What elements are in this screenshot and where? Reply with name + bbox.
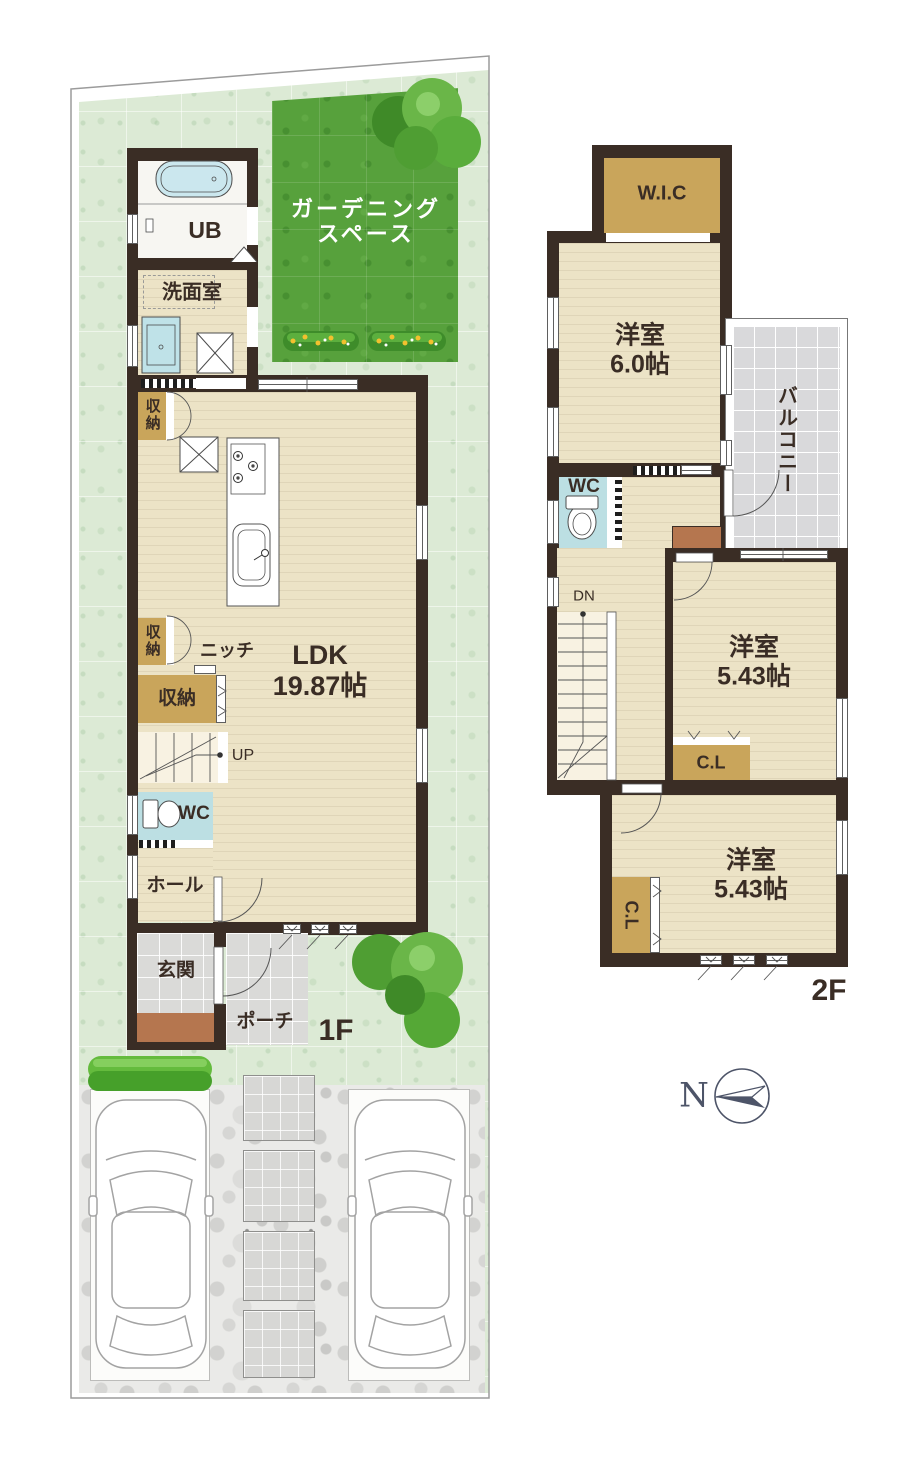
wall xyxy=(138,258,247,270)
window xyxy=(547,500,559,544)
vent xyxy=(633,466,680,475)
stairs-floor xyxy=(138,732,218,783)
label-bedroom3: 洋室 5.43帖 xyxy=(714,846,788,904)
stairs2-floor xyxy=(557,612,607,780)
label-porch: ポーチ xyxy=(236,1011,293,1033)
wall xyxy=(592,145,732,158)
label-washroom: 洗面室 xyxy=(162,282,222,305)
door-opening xyxy=(247,207,258,245)
label-hall: ホール xyxy=(146,875,203,897)
window xyxy=(127,214,138,244)
label-ub: UB xyxy=(188,217,221,243)
label-garden-line2: スペース xyxy=(291,222,441,247)
label-entrance: 玄関 xyxy=(157,960,195,982)
label-niche: ニッチ xyxy=(200,641,254,662)
window xyxy=(766,955,788,965)
vent xyxy=(141,379,196,388)
label-bedroom2-size: 5.43帖 xyxy=(717,662,791,691)
closet-opening xyxy=(673,737,750,745)
label-bedroom3-name: 洋室 xyxy=(714,846,788,875)
wall xyxy=(547,780,848,795)
label-up: UP xyxy=(232,747,254,765)
parking-stall-left xyxy=(90,1089,210,1381)
wall xyxy=(416,375,428,935)
door-opening xyxy=(607,477,615,548)
label-balcony: バルコニー xyxy=(774,385,797,495)
stepping-stone xyxy=(243,1150,315,1222)
label-bedroom2-name: 洋室 xyxy=(717,633,791,662)
window xyxy=(720,345,732,395)
wall xyxy=(600,953,848,967)
label-wic: W.I.C xyxy=(638,183,687,206)
window xyxy=(547,407,559,457)
window xyxy=(416,505,428,560)
window xyxy=(283,924,301,934)
window xyxy=(416,728,428,783)
window xyxy=(127,855,138,899)
label-floor-1f: 1F xyxy=(318,1014,353,1049)
wall xyxy=(213,933,226,947)
label-storage-mid: 収納 xyxy=(143,624,160,658)
closet-opening xyxy=(166,392,174,440)
window xyxy=(836,820,848,875)
label-wc-2f: WC xyxy=(568,476,600,498)
label-bedroom1-size: 6.0帖 xyxy=(610,350,670,379)
closet-opening xyxy=(166,616,174,665)
label-compass-north: N xyxy=(679,1076,709,1115)
window xyxy=(258,379,358,390)
window xyxy=(547,577,559,607)
entrance-step xyxy=(137,1013,214,1042)
label-storage-large: 収納 xyxy=(158,688,196,710)
niche-slot xyxy=(194,665,216,674)
label-bedroom3-size: 5.43帖 xyxy=(714,875,788,904)
window xyxy=(339,924,357,934)
label-wc-1f: WC xyxy=(178,803,210,825)
vent xyxy=(139,840,175,848)
stepping-stone xyxy=(243,1075,315,1141)
window xyxy=(720,440,732,466)
door-opening xyxy=(196,378,246,389)
wall xyxy=(665,548,673,782)
window xyxy=(733,955,755,965)
wall xyxy=(600,780,612,967)
label-gardening-space: ガーデニング スペース xyxy=(291,197,441,248)
wall xyxy=(127,148,138,1050)
wall xyxy=(720,145,732,243)
closet-door xyxy=(216,675,226,723)
label-ldk: LDK 19.87帖 xyxy=(273,640,368,702)
label-dn: DN xyxy=(573,587,595,604)
window xyxy=(681,465,712,475)
stepping-stone xyxy=(243,1310,315,1378)
stairs-opening xyxy=(218,732,228,783)
hedge-highlight xyxy=(93,1059,207,1067)
parking-stall-right xyxy=(348,1089,470,1381)
wall xyxy=(127,1042,226,1050)
label-bedroom1: 洋室 6.0帖 xyxy=(610,321,670,379)
stepping-stone xyxy=(243,1231,315,1301)
vent xyxy=(615,480,622,544)
label-closet2: C.L xyxy=(621,901,642,930)
wall xyxy=(247,148,258,392)
label-bedroom1-name: 洋室 xyxy=(610,321,670,350)
closet-door xyxy=(650,877,660,953)
label-garden-line1: ガーデニング xyxy=(291,197,441,222)
label-ldk-size: 19.87帖 xyxy=(273,671,368,702)
label-closet1: C.L xyxy=(697,753,726,774)
window xyxy=(547,297,559,349)
label-floor-2f: 2F xyxy=(811,974,846,1009)
compass-icon xyxy=(715,1069,769,1123)
door-opening xyxy=(247,307,258,347)
unit-bath-floor xyxy=(138,161,247,258)
wall xyxy=(592,145,604,243)
wall xyxy=(127,148,258,161)
counter xyxy=(672,526,722,549)
window xyxy=(127,795,138,835)
window xyxy=(836,698,848,778)
wic-opening xyxy=(606,233,710,242)
label-storage-top: 収納 xyxy=(143,398,160,432)
door-opening xyxy=(175,840,213,848)
window xyxy=(311,924,329,934)
label-ldk-name: LDK xyxy=(273,640,368,671)
label-bedroom2: 洋室 5.43帖 xyxy=(717,633,791,691)
hedge-shadow xyxy=(88,1071,212,1091)
window xyxy=(700,955,722,965)
window xyxy=(740,550,828,559)
window xyxy=(127,325,138,367)
floorplan-canvas: UB 洗面室 ガーデニング スペース 収納 収納 ニッチ 収納 LDK 19.8… xyxy=(0,0,914,1475)
wall xyxy=(127,923,226,933)
